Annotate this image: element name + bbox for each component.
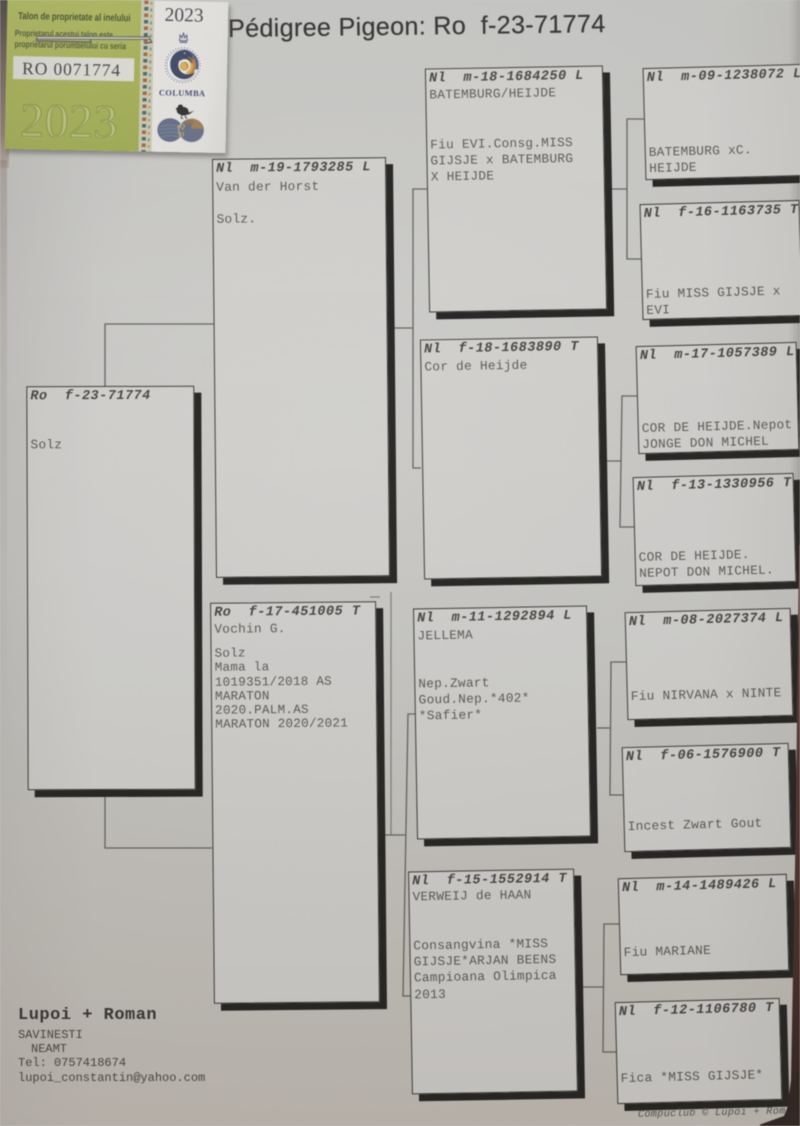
svg-text:εϘ: εϘ: [177, 123, 185, 130]
svg-text:COLUMBA: COLUMBA: [159, 88, 206, 98]
svg-text:ϽΙ: ϽΙ: [177, 131, 185, 138]
